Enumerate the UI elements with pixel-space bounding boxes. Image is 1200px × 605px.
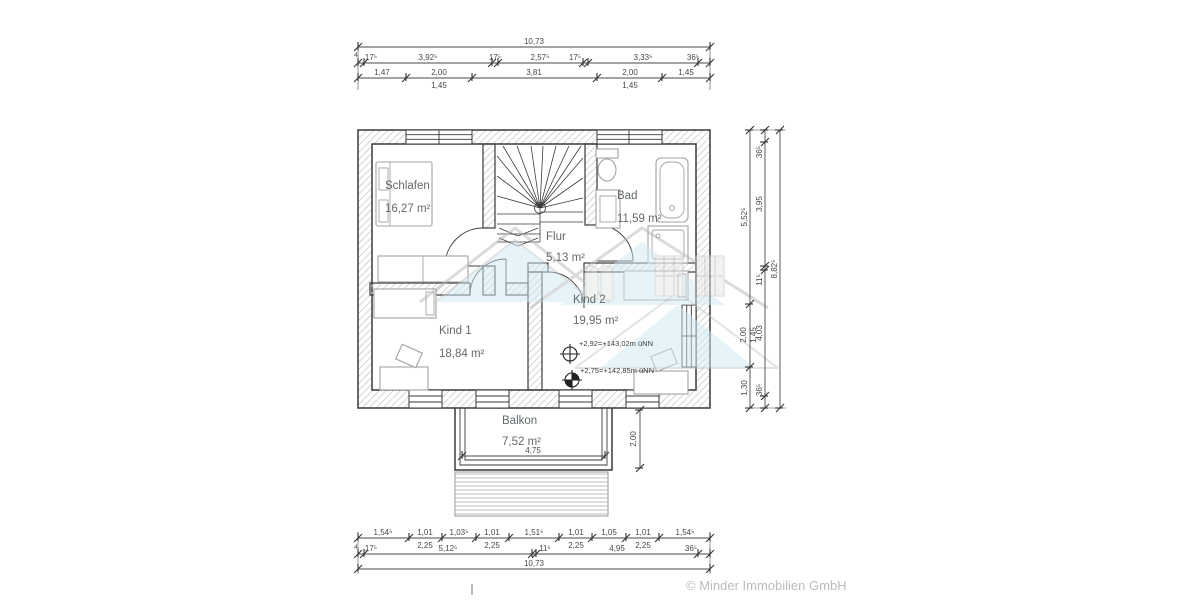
svg-text:1,01: 1,01 [635, 528, 651, 537]
svg-text:1,01: 1,01 [568, 528, 584, 537]
svg-text:Kind 2: Kind 2 [573, 294, 606, 306]
dresser-schlafen [378, 256, 468, 282]
balcony-door-2 [559, 390, 592, 408]
svg-text:5,13 m²: 5,13 m² [546, 252, 585, 264]
svg-text:36⁵: 36⁵ [685, 544, 697, 553]
svg-text:17⁵: 17⁵ [365, 544, 377, 553]
room-label-flur: Flur 5,13 m² [546, 231, 585, 264]
window-bottom-1 [409, 390, 442, 408]
svg-text:1,01: 1,01 [484, 528, 500, 537]
svg-text:1,05: 1,05 [601, 528, 617, 537]
svg-text:18,84 m²: 18,84 m² [439, 348, 485, 360]
svg-text:4,03: 4,03 [755, 325, 764, 341]
svg-text:2,25: 2,25 [635, 541, 651, 550]
balcony-deck [455, 472, 608, 516]
svg-text:Balkon: Balkon [502, 415, 537, 427]
svg-text:17⁵: 17⁵ [365, 53, 377, 62]
svg-text:+2,75=+142,85m üNN: +2,75=+142,85m üNN [580, 366, 654, 375]
svg-text:3,92⁵: 3,92⁵ [419, 53, 438, 62]
svg-text:3,95: 3,95 [755, 196, 764, 212]
svg-text:1,45: 1,45 [622, 81, 638, 90]
svg-text:10,73: 10,73 [524, 559, 545, 568]
toilet-icon [596, 149, 618, 181]
dimension-top: 10,73 4 17⁵ 3,92⁵ 17⁵ 2,57⁵ 17⁵ 3,33⁵ 36… [354, 37, 714, 90]
svg-text:1,51⁵: 1,51⁵ [525, 528, 544, 537]
svg-text:4,95: 4,95 [609, 544, 625, 553]
dimension-bottom: 1,54⁵ 1,01 2,25 1,03⁵ 1,01 2,25 1,51⁵ 1,… [354, 528, 714, 574]
svg-text:Bad: Bad [617, 190, 637, 202]
bed-schlafen [376, 162, 432, 226]
svg-text:19,95 m²: 19,95 m² [573, 315, 619, 327]
svg-text:2,00: 2,00 [622, 68, 638, 77]
svg-text:1,30: 1,30 [740, 380, 749, 396]
svg-text:5,52⁵: 5,52⁵ [740, 208, 749, 227]
svg-text:36⁵: 36⁵ [755, 384, 764, 396]
floor-plan-drawing: Schlafen 16,27 m² Bad 11,59 m² Flur 5,13… [0, 0, 1200, 600]
room-label-bad: Bad 11,59 m² [617, 190, 662, 225]
svg-text:5,12⁵: 5,12⁵ [439, 544, 458, 553]
dimension-right: 5,52⁵ 2,00 1,45 1,30 36⁵ 3,95 11⁵ 4,03 3… [739, 126, 786, 412]
svg-text:11⁵: 11⁵ [539, 544, 551, 553]
svg-text:Kind 1: Kind 1 [439, 325, 472, 337]
svg-text:1,45: 1,45 [431, 81, 447, 90]
svg-text:2,25: 2,25 [484, 541, 500, 550]
svg-text:1,03⁵: 1,03⁵ [450, 528, 469, 537]
svg-text:3,81: 3,81 [526, 68, 542, 77]
window-top-bad [597, 130, 662, 144]
svg-text:4,75: 4,75 [525, 446, 541, 455]
svg-text:11⁵: 11⁵ [755, 274, 764, 286]
svg-text:Flur: Flur [546, 231, 566, 243]
copyright-text: © Minder Immobilien GmbH [686, 578, 847, 593]
svg-text:1,45: 1,45 [678, 68, 694, 77]
svg-text:2,25: 2,25 [417, 541, 433, 550]
svg-text:17⁵: 17⁵ [569, 53, 581, 62]
svg-text:2,00: 2,00 [629, 431, 638, 447]
room-label-balkon: Balkon 7,52 m² [502, 415, 541, 448]
svg-text:2,00: 2,00 [431, 68, 447, 77]
svg-text:11,59 m²: 11,59 m² [617, 213, 662, 225]
svg-text:1,47: 1,47 [374, 68, 390, 77]
bed-kind1 [374, 289, 436, 318]
svg-text:36⁵: 36⁵ [755, 146, 764, 158]
desk-kind1 [380, 344, 428, 390]
svg-text:4: 4 [354, 544, 358, 551]
room-label-kind1: Kind 1 18,84 m² [439, 325, 485, 360]
svg-text:10,73: 10,73 [524, 37, 545, 46]
svg-text:2,00: 2,00 [739, 327, 748, 343]
svg-text:17⁵: 17⁵ [489, 53, 501, 62]
svg-text:4: 4 [354, 52, 358, 59]
svg-text:8,82⁵: 8,82⁵ [770, 260, 779, 279]
svg-text:1,01: 1,01 [417, 528, 433, 537]
svg-text:3,33⁵: 3,33⁵ [634, 53, 653, 62]
svg-text:36⁵: 36⁵ [687, 53, 699, 62]
svg-text:1,54⁵: 1,54⁵ [374, 528, 393, 537]
balcony-door-1 [476, 390, 509, 408]
svg-text:2,57⁵: 2,57⁵ [531, 53, 550, 62]
svg-text:16,27 m²: 16,27 m² [385, 203, 431, 215]
window-top-schlafen [406, 130, 472, 144]
svg-text:Schlafen: Schlafen [385, 180, 430, 192]
svg-text:1,54⁵: 1,54⁵ [676, 528, 695, 537]
svg-text:2,25: 2,25 [568, 541, 584, 550]
svg-text:+2,92=+143,02m üNN: +2,92=+143,02m üNN [579, 339, 653, 348]
dimension-balcony: 4,75 2,00 [458, 406, 644, 472]
